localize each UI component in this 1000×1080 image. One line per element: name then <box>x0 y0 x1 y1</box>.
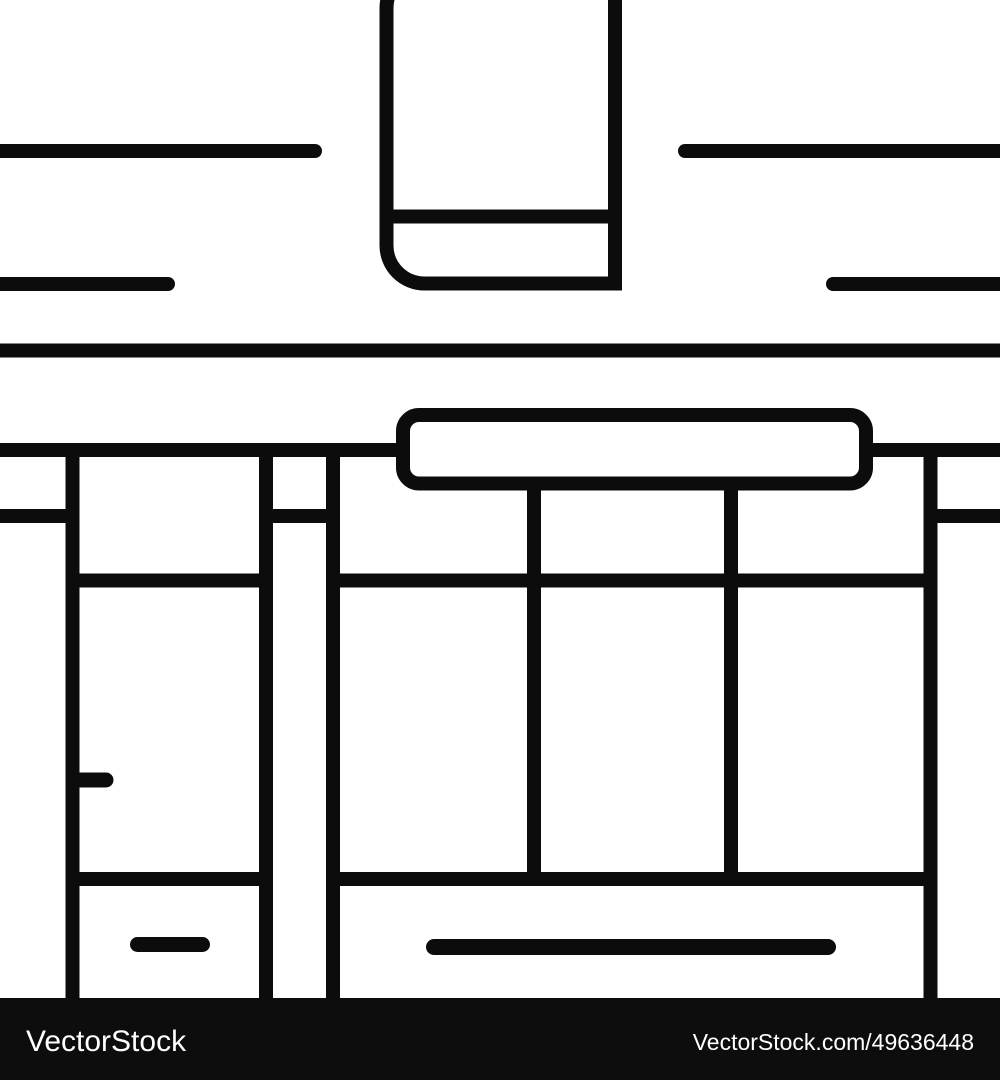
watermark-url: VectorStock.com/49636448 <box>693 1029 974 1056</box>
watermark-bar: VectorStock VectorStock.com/49636448 <box>0 998 1000 1080</box>
shop-storefront-icon <box>0 0 1000 1080</box>
storefront-frame <box>0 450 1000 1012</box>
display-window <box>333 483 931 947</box>
chimney-body <box>387 0 616 284</box>
stock-image-canvas: VectorStock VectorStock.com/49636448 <box>0 0 1000 1080</box>
chimney <box>387 0 616 284</box>
sign-board <box>403 415 866 484</box>
watermark-logo: VectorStock <box>26 1025 186 1059</box>
door <box>73 581 267 945</box>
